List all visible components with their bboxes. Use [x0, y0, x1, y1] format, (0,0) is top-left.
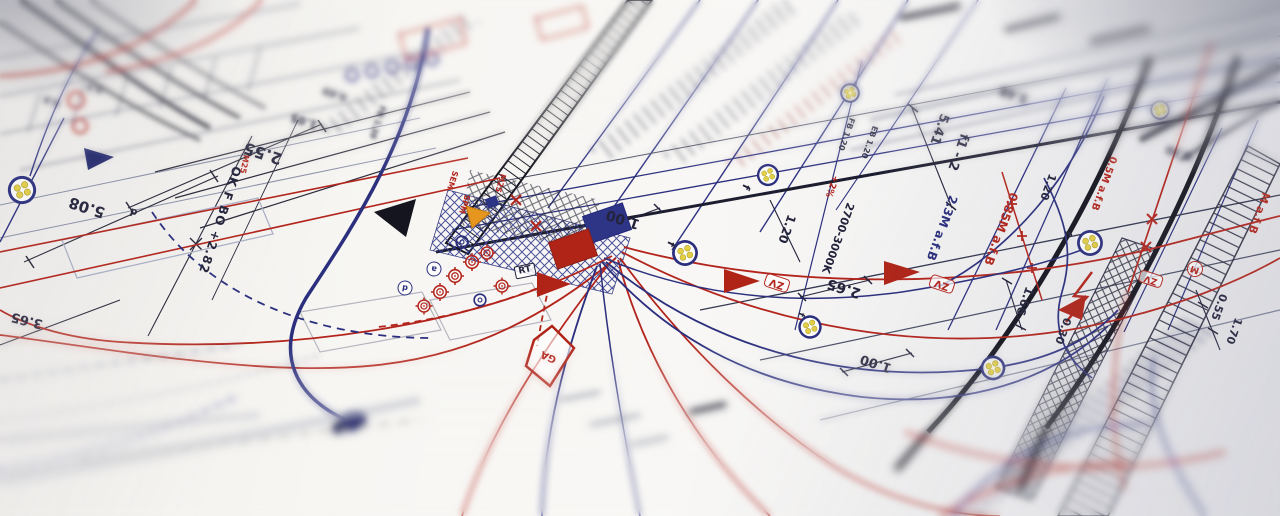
dim-5-08: 5.08: [67, 194, 107, 220]
label-23m-afb: 2.3M a.f.B: [925, 194, 960, 262]
label-m-motor: M: [1185, 259, 1206, 280]
blueprint-photo: 2.551.050.695.083.65OK F BO +2.82M25FB 1…: [0, 0, 1280, 516]
label-ok-f-bo: OK F BO +2.82: [197, 165, 243, 275]
label-05m-afb: 0.5M a.f.B: [1089, 155, 1118, 212]
dim-1-66: 1.66: [1014, 285, 1035, 317]
dim-1-20-right: 1.20: [1038, 172, 1058, 201]
label-f-3: f: [1062, 229, 1073, 237]
dim-0-30-top: 0.30: [1164, 144, 1193, 163]
label-plus-2pct: +2%: [823, 174, 839, 199]
dim-5-41: 5.41: [927, 112, 950, 147]
label-eb-120: EB 1.20: [859, 125, 878, 160]
label-d-left: d: [129, 205, 139, 217]
dim-0-5-blur: 0.5: [86, 80, 104, 93]
dim-1-20-center: 1.20: [776, 213, 797, 245]
dim-2-65: 2.65: [825, 276, 862, 300]
label-fb-120: FB 1.20: [836, 117, 855, 152]
dim-0-30-right: 0.30: [1053, 316, 1073, 345]
dim-3-48: 3.48: [998, 85, 1030, 106]
label-2700-3000k: 2700-3000K: [820, 201, 856, 275]
label-spm: SPM: [457, 193, 471, 214]
label-d-circle: d: [396, 279, 413, 296]
label-f-1: f: [665, 240, 677, 249]
dim-1-05: 1.05: [289, 112, 318, 131]
label-fb-120-left: FB 1.20: [368, 105, 386, 140]
label-zv-3: ZV: [1138, 269, 1164, 289]
dim-1-00-right: 1.00: [859, 352, 894, 374]
label-m25-left: M25: [238, 154, 250, 174]
dim-1-00-center: 1.00: [604, 207, 641, 231]
label-sem: SEM: [445, 170, 459, 191]
label-m25-center: M25: [493, 173, 507, 194]
label-f-4: f: [795, 311, 805, 318]
label-rt: RT: [514, 262, 537, 279]
label-085m-afb: 0.85M a.f.B: [982, 191, 1019, 267]
label-zv-1: ZV: [763, 272, 791, 293]
dim-1-70: 1.70: [1224, 316, 1244, 345]
dim-3-65: 3.65: [10, 310, 44, 330]
label-a-circle: a: [425, 260, 442, 277]
dim-0-55: 0.55: [1209, 292, 1229, 321]
dim-0-69: 0.69: [322, 84, 349, 101]
dim-0-8-blur: 0.8: [43, 93, 61, 106]
label-zv-2: ZV: [928, 273, 956, 294]
label-f-2: f: [740, 183, 752, 192]
label-m-afb-edge: M a.f.B: [1246, 191, 1271, 235]
label-ga: GA: [540, 348, 559, 364]
label-f1-2: f1 - 2: [945, 132, 970, 172]
annotation-layer: 2.551.050.695.083.65OK F BO +2.82M25FB 1…: [0, 0, 1280, 516]
